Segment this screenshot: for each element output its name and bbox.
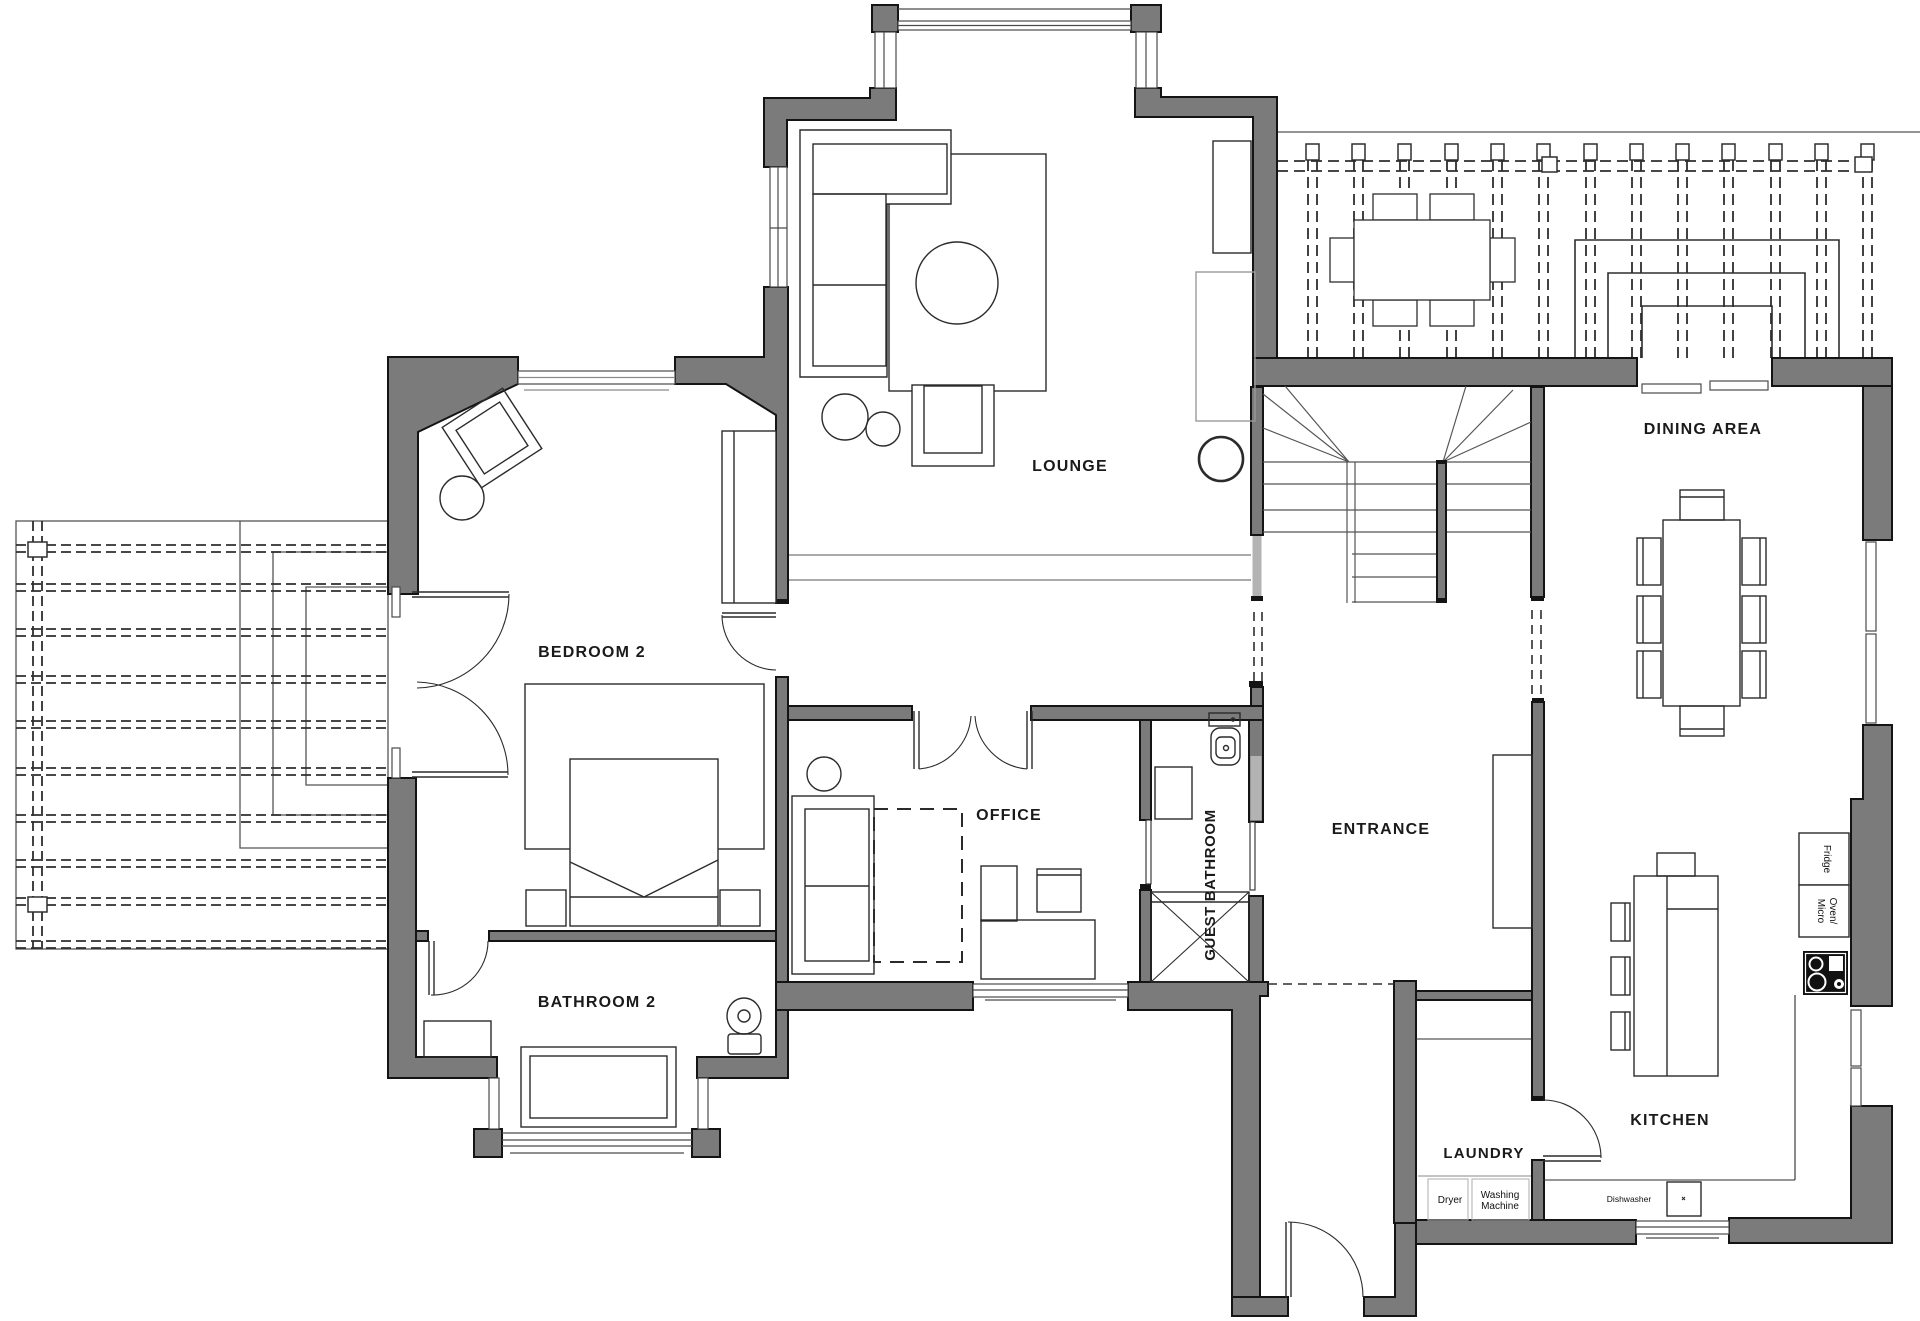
svg-text:LOUNGE: LOUNGE [1032, 458, 1108, 475]
svg-text:BEDROOM 2: BEDROOM 2 [538, 644, 646, 661]
svg-text:DINING AREA: DINING AREA [1644, 421, 1762, 438]
svg-text:Micro: Micro [1815, 899, 1826, 924]
svg-text:BATHROOM 2: BATHROOM 2 [538, 994, 656, 1011]
svg-text:Dryer: Dryer [1438, 1195, 1463, 1206]
svg-text:Washing: Washing [1481, 1190, 1520, 1201]
svg-text:LAUNDRY: LAUNDRY [1443, 1145, 1524, 1162]
svg-text:OFFICE: OFFICE [976, 807, 1042, 824]
svg-text:ENTRANCE: ENTRANCE [1332, 821, 1431, 838]
svg-text:Machine: Machine [1481, 1201, 1519, 1212]
svg-text:Oven/: Oven/ [1827, 898, 1838, 925]
svg-text:Fridge: Fridge [1821, 845, 1832, 874]
svg-text:GUEST BATHROOM: GUEST BATHROOM [1202, 809, 1219, 960]
svg-text:KITCHEN: KITCHEN [1630, 1112, 1710, 1129]
svg-text:Dishwasher: Dishwasher [1607, 1194, 1652, 1204]
